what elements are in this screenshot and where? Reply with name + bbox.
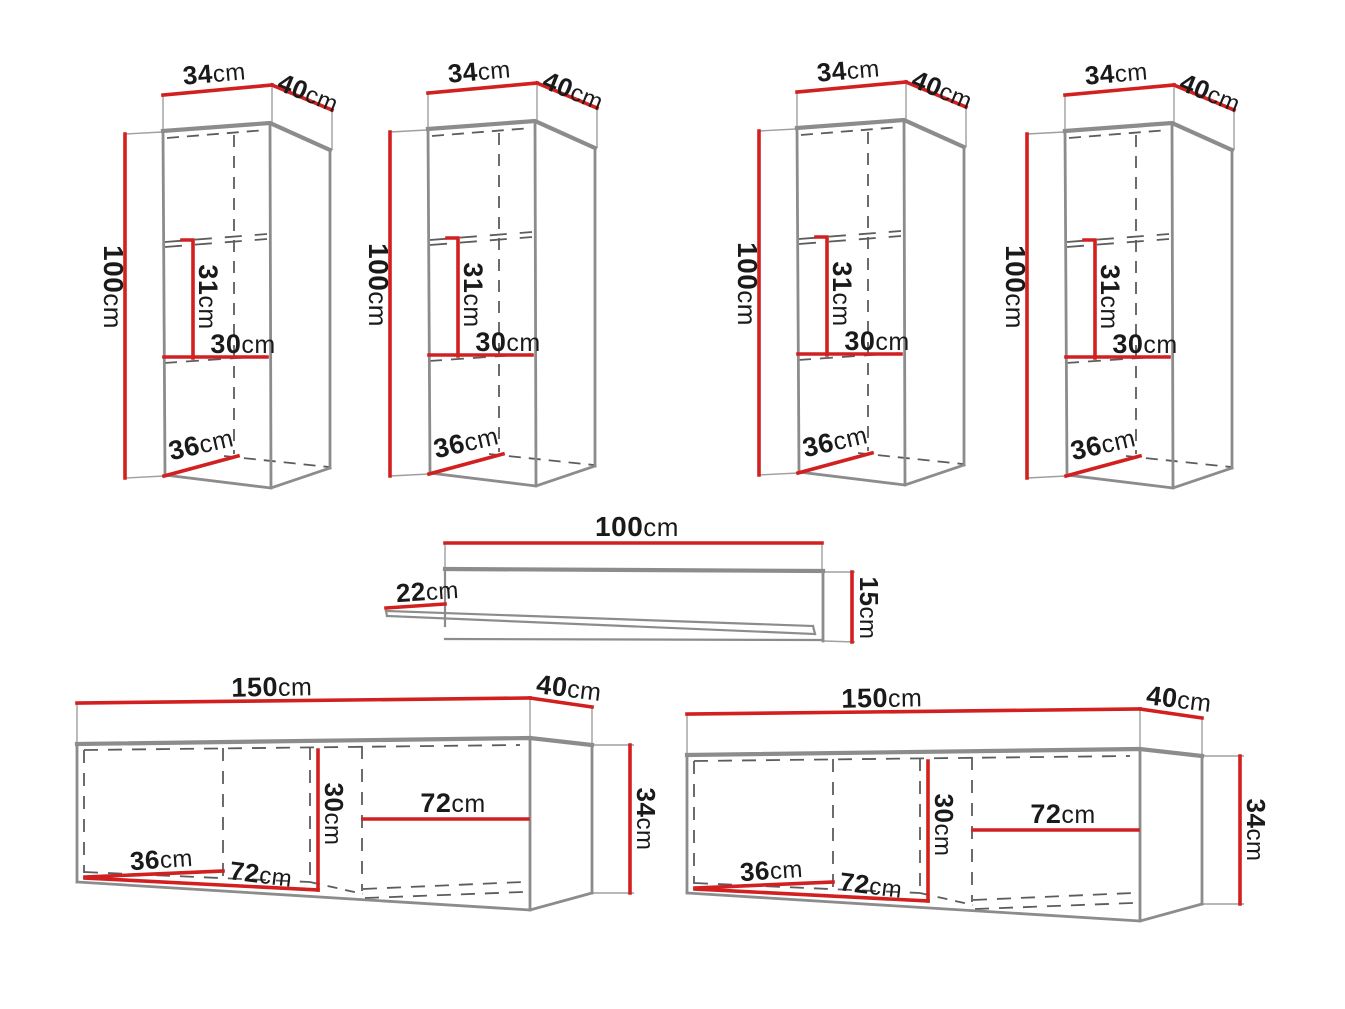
- height-dimension-label: 100cm: [1000, 245, 1031, 329]
- dimension-extension-lines: [1027, 85, 1234, 478]
- dimension-extension-lines: [125, 85, 332, 478]
- height-dimension-label: 15cm: [854, 577, 884, 640]
- width-dimension-label: 150cm: [231, 671, 312, 702]
- inner-depth-label: 36cm: [739, 853, 804, 887]
- furniture-dimensions-diagram: 34cm 40cm 100cm 31cm 30cm 36cm: [0, 0, 1345, 1009]
- inner-height-label: 30cm: [319, 783, 349, 846]
- upper-inner-height-label: 31cm: [193, 264, 223, 329]
- height-dimension-label: 34cm: [1241, 799, 1271, 862]
- dimension-lines: [1027, 85, 1234, 478]
- inner-width-label: 30cm: [210, 329, 275, 359]
- dimension-labels: 34cm 40cm 100cm 31cm 30cm 36cm: [732, 52, 977, 463]
- hidden-edges: [164, 130, 329, 467]
- dimension-lines: [759, 82, 966, 475]
- wall-cabinet-drawing: 34cm 40cm 100cm 31cm 30cm 36cm: [360, 53, 615, 498]
- dimension-extension-lines: [759, 82, 966, 475]
- wall-cabinet-2: 34cm 40cm 100cm 31cm 30cm 36cm: [360, 53, 615, 498]
- wall-shelf-drawing: 100cm 22cm 15cm: [383, 515, 893, 665]
- depth-dimension-label: 40cm: [539, 65, 609, 116]
- height-dimension-label: 100cm: [98, 245, 129, 329]
- hidden-edges: [429, 128, 594, 465]
- height-dimension-label: 34cm: [631, 788, 661, 851]
- dimension-lines: [125, 85, 332, 478]
- hidden-edges: [1066, 130, 1231, 467]
- dimension-labels: 34cm 40cm 100cm 31cm 30cm 36cm: [363, 53, 608, 464]
- depth-dimension-label: 40cm: [274, 67, 344, 118]
- depth-dimension-label: 40cm: [908, 64, 978, 115]
- upper-inner-height-label: 31cm: [458, 262, 488, 327]
- dimension-lines: [390, 83, 597, 476]
- wall-cabinet-drawing: 34cm 40cm 100cm 31cm 30cm 36cm: [95, 55, 350, 500]
- inner-height-label: 30cm: [929, 794, 959, 857]
- width-dimension-label: 150cm: [841, 682, 922, 713]
- width-dimension-label: 100cm: [595, 511, 679, 542]
- tv-cabinet-drawing: 150cm 40cm 34cm 30cm 72cm 36cm 72cm: [60, 675, 660, 925]
- dimension-extension-lines: [390, 83, 597, 476]
- right-inner-width-label: 72cm: [1030, 799, 1095, 829]
- upper-inner-height-label: 31cm: [1095, 264, 1125, 329]
- upper-inner-height-label: 31cm: [827, 261, 857, 326]
- inner-width-label: 30cm: [475, 327, 540, 357]
- wall-cabinet-4: 34cm 40cm 100cm 31cm 30cm 36cm: [997, 55, 1252, 500]
- height-dimension-label: 100cm: [363, 243, 394, 327]
- hidden-edges: [798, 127, 963, 464]
- wall-cabinet-3: 34cm 40cm 100cm 31cm 30cm 36cm: [729, 52, 984, 497]
- tv-cabinet-drawing: 150cm 40cm 34cm 30cm 72cm 36cm 72cm: [670, 686, 1270, 936]
- right-inner-width-label: 72cm: [420, 788, 485, 818]
- width-dimension-label: 34cm: [182, 55, 247, 90]
- wall-cabinet-drawing: 34cm 40cm 100cm 31cm 30cm 36cm: [729, 52, 984, 497]
- tv-cabinet-1: 150cm 40cm 34cm 30cm 72cm 36cm 72cm: [60, 675, 660, 925]
- tv-cabinet-2: 150cm 40cm 34cm 30cm 72cm 36cm 72cm: [670, 686, 1270, 936]
- width-dimension-label: 34cm: [1084, 55, 1149, 90]
- height-dimension-label: 100cm: [732, 242, 763, 326]
- depth-dimension-label: 40cm: [1176, 67, 1246, 118]
- wall-shelf: 100cm 22cm 15cm: [383, 515, 893, 665]
- wall-cabinet-drawing: 34cm 40cm 100cm 31cm 30cm 36cm: [997, 55, 1252, 500]
- dimension-labels: 34cm 40cm 100cm 31cm 30cm 36cm: [1000, 55, 1245, 466]
- width-dimension-label: 34cm: [816, 52, 881, 87]
- wall-cabinet-1: 34cm 40cm 100cm 31cm 30cm 36cm: [95, 55, 350, 500]
- depth-dimension-label: 22cm: [395, 574, 460, 608]
- width-dimension-label: 34cm: [447, 53, 512, 88]
- inner-width-label: 30cm: [844, 326, 909, 356]
- inner-width-label: 30cm: [1112, 329, 1177, 359]
- inner-depth-label: 36cm: [129, 842, 194, 876]
- dimension-labels: 34cm 40cm 100cm 31cm 30cm 36cm: [98, 55, 343, 466]
